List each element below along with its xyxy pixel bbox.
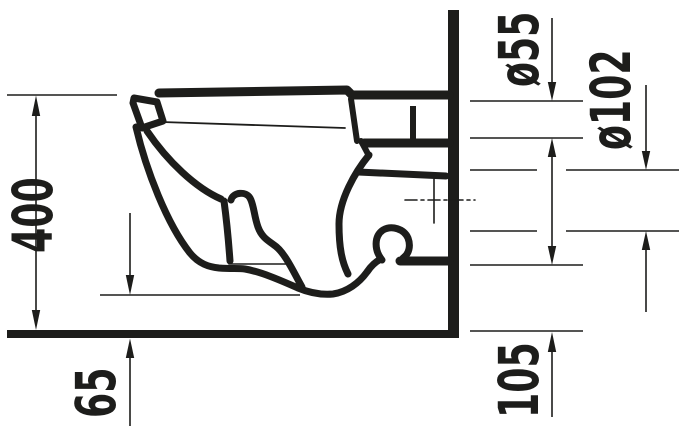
dimension-labels: 400 65 105 ø55 ø102	[1, 12, 643, 418]
label-floor-gap: 65	[64, 367, 128, 418]
technical-drawing: 400 65 105 ø55 ø102	[0, 0, 679, 429]
label-outlet-bottom-height: 105	[487, 342, 551, 418]
arrowhead-down-o102	[642, 151, 650, 170]
sump-back-line	[224, 201, 230, 261]
arrowhead-up-400	[32, 96, 40, 117]
flush-pipe-coupling	[410, 106, 416, 139]
rim-front-nose	[133, 98, 163, 128]
floor-line	[7, 330, 459, 338]
label-outlet-pipe-diameter: ø102	[579, 49, 643, 150]
label-overall-height: 400	[1, 177, 65, 253]
arrowhead-up-o55	[548, 138, 556, 157]
outlet-top-edge	[358, 172, 446, 176]
arrowhead-down-65	[126, 275, 134, 295]
rim-top-line	[159, 90, 449, 95]
outlet-bend-hook	[376, 228, 409, 260]
arrowhead-up-o102	[642, 231, 650, 250]
arrowhead-down-400	[32, 310, 40, 330]
bowl-back-slant	[351, 99, 357, 141]
toilet-body	[133, 90, 475, 294]
rim-inner-edge-line	[162, 122, 345, 128]
wall-line	[448, 10, 459, 338]
arrowhead-down-105	[548, 246, 556, 265]
label-flush-pipe-diameter: ø55	[487, 12, 551, 87]
arrowhead-up-65	[126, 339, 134, 359]
